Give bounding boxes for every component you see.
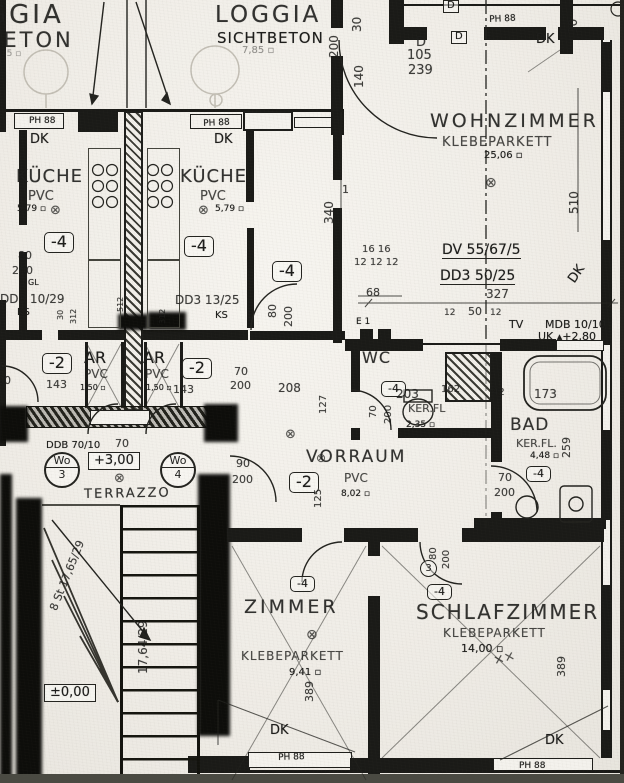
dim-259: 259 [561, 437, 572, 458]
door-dim-105: 105 [407, 49, 432, 62]
room-finish-vorraum: PVC [344, 472, 368, 484]
dim-312: 312 [159, 309, 167, 324]
dim-80: 80 [18, 250, 32, 261]
dim-208: 208 [278, 382, 301, 394]
window-label-dk: DK [545, 734, 564, 747]
room-label-wc: WC [362, 350, 391, 366]
dim-327: 327 [486, 288, 509, 300]
dim-12: 12 [490, 309, 501, 318]
room-finish-kueche-left: PVC [28, 190, 54, 203]
level-marker-zero: ±0,00 [44, 684, 96, 702]
dim-127: 127 [319, 395, 329, 414]
dim-140: 140 [353, 65, 365, 88]
dim-70: 70 [369, 405, 379, 418]
dim-200: 200 [494, 487, 515, 498]
dim-30: 30 [567, 19, 579, 34]
label-ks: KS [17, 308, 30, 318]
corner-mark [611, 2, 624, 16]
dim-200: 200 [230, 380, 251, 391]
room-area-wohnzimmer: 25,06 ▫ [484, 151, 523, 161]
door-mark-d2: D [451, 31, 467, 44]
room-area-vorraum: 8,02 ▫ [341, 490, 370, 499]
room-label-kueche-left: KÜCHE [16, 168, 83, 186]
room-label-terrazzo: TERRAZZO [84, 486, 171, 501]
dim-312: 312 [70, 309, 78, 324]
tree-symbols [24, 46, 239, 108]
dim-42: 42 [492, 388, 505, 398]
ceiling-outlet-icon: ⊗ [50, 204, 61, 217]
dim-200: 200 [384, 405, 394, 424]
room-finish-kueche-right: PVC [200, 190, 226, 203]
dim-173: 173 [534, 388, 557, 400]
room-label-zimmer: ZIMMER [244, 598, 339, 617]
beam-label-dv: DV 55/67/5 [442, 243, 521, 259]
dim-143: 143 [173, 384, 194, 395]
dim-1: 1 [342, 184, 349, 195]
bathtub [524, 356, 606, 410]
dim-200: 200 [232, 474, 253, 485]
room-area-bad: 4,48 ▫ [530, 452, 559, 461]
dim-389: 389 [556, 656, 567, 677]
dim-200: 200 [12, 265, 33, 276]
room-area-loggia-cut: 3,5 ▫ [0, 50, 21, 59]
level-marker-upper: +3,00 [88, 452, 140, 470]
dim-143: 143 [46, 379, 67, 390]
room-area-wc: 2,35 ▫ [406, 421, 435, 430]
door-dim-239: 239 [408, 64, 433, 77]
room-finish-ar-right: PVC [145, 368, 169, 380]
window-label-ph88: PH 88 [519, 762, 546, 771]
beam-label-dd3-50-25: DD3 50/25 [440, 269, 515, 285]
window-label-ph88: PH 88 [489, 15, 516, 25]
room-label-ar-right: AR [143, 350, 165, 366]
dim-200: 200 [442, 550, 452, 569]
room-label-schlafzimmer: SCHLAFZIMMER [416, 602, 599, 622]
room-finish-loggia-cut: BETON [0, 30, 74, 51]
dim-70: 70 [234, 366, 248, 377]
window-label-dk: DK [536, 33, 555, 46]
dim-70: 70 [115, 438, 129, 449]
window-label-dk: DK [270, 724, 289, 737]
dim-200: 200 [283, 306, 294, 327]
ceiling-outlet-icon: ⊗ [316, 452, 326, 464]
dim-12: 12 [444, 309, 455, 318]
dim-30: 30 [351, 17, 363, 32]
room-area-ar-right: 1,50 ▫ [146, 384, 172, 392]
room-finish-ar-left: PVC [84, 368, 108, 380]
door-tag-minus4: -4 [526, 466, 551, 482]
door-tag-minus2: -2 [182, 358, 212, 379]
floorplan-sheet: GGIA BETON 3,5 ▫ LOGGIA SICHTBETON 7,85 … [0, 0, 624, 783]
level-label-uk: UK ▴+2,80 [538, 331, 596, 342]
position-circle-3: 3 [420, 560, 437, 577]
window-label-dk: DK [214, 133, 233, 146]
room-label-wohnzimmer: WOHNZIMMER [430, 112, 599, 131]
door-mark-d1: D [443, 0, 459, 13]
label-ks: KS [215, 311, 228, 321]
dim-340: 340 [323, 201, 335, 224]
room-finish-zimmer: KLEBEPARKETT [241, 650, 344, 662]
label-gl: GL [28, 279, 39, 287]
room-finish-wc: KER.FL [408, 403, 445, 414]
dim-12-12-12: 12 12 12 [354, 258, 399, 268]
dim-389: 389 [304, 681, 315, 702]
ceiling-outlet-icon: ⊗ [198, 204, 209, 217]
door-tag-minus4: -4 [427, 584, 452, 600]
beam-label-ddb: DDB 70/10 [46, 441, 100, 451]
door-tag-minus4: -4 [184, 236, 214, 257]
window-label-ph88: PH 88 [203, 119, 230, 129]
dim-512: 512 [117, 297, 125, 312]
door-tag-minus4: -4 [44, 232, 74, 253]
apartment-circle-wo3: Wo 3 [44, 452, 80, 488]
dim-70: 70 [498, 472, 512, 483]
room-finish-schlafzimmer: KLEBEPARKETT [443, 627, 546, 639]
label-tv: TV [509, 319, 523, 330]
room-area-ar-left: 1,50 ▫ [80, 384, 106, 392]
room-finish-loggia: SICHTBETON [217, 31, 324, 46]
room-area-kueche-right: 5,79 ▫ [215, 205, 244, 214]
beam-label-dd3-13-25: DD3 13/25 [175, 294, 240, 306]
ceiling-outlet-icon: ⊗ [306, 628, 318, 642]
window-label-ph88: PH 88 [278, 753, 305, 763]
dim-68: 68 [366, 287, 380, 298]
room-area-loggia: 7,85 ▫ [242, 46, 274, 56]
beam-label-mdb: MDB 10/10 [545, 319, 606, 330]
beam-label-dd3-10-29: DD3 10/29 [0, 293, 65, 305]
door-arc-ar-right [146, 404, 176, 434]
boiler [560, 486, 592, 522]
room-label-kueche-right: KÜCHE [180, 168, 247, 186]
room-area-zimmer: 9,41 ▫ [289, 668, 321, 678]
washbasin [516, 496, 538, 518]
door-tag-minus2: -2 [42, 353, 72, 374]
room-area-kueche-left: 5,79 ▫ [17, 205, 46, 214]
door-tag-minus4: -4 [290, 576, 315, 592]
window-label-dk: DK [30, 133, 49, 146]
apartment-label: Wo [170, 454, 187, 467]
dim-510: 510 [568, 191, 580, 214]
dim-200: 200 [328, 35, 340, 58]
dim-70: 70 [0, 361, 6, 372]
apartment-label: Wo [54, 454, 71, 467]
room-label-loggia: LOGGIA [215, 4, 321, 27]
apartment-number: 4 [162, 467, 194, 481]
apartment-number: 3 [46, 467, 78, 481]
ceiling-outlet-icon: ⊗ [485, 176, 497, 190]
room-finish-wohnzimmer: KLEBEPARKETT [442, 136, 552, 149]
dim-80: 80 [429, 547, 439, 560]
dim-50: 50 [468, 306, 482, 317]
stair-label-straight: 17,64/29 [137, 620, 149, 674]
cooktop-circles [93, 165, 173, 208]
ceiling-outlet-icon: ⊗ [285, 428, 296, 441]
room-label-bad: BAD [510, 417, 549, 434]
dim-30: 30 [57, 310, 65, 320]
dim-200: 200 [0, 375, 11, 386]
ceiling-outlet-icon: ⊗ [114, 472, 125, 485]
window-label-ph88: PH 88 [29, 117, 56, 126]
dim-90: 90 [236, 458, 250, 469]
dim-203: 203 [396, 388, 419, 400]
apartment-circle-wo4: Wo 4 [160, 452, 196, 488]
room-label-loggia-cut: GGIA [0, 2, 64, 28]
leader-arrows [92, 0, 170, 108]
dim-16-16: 16 16 [362, 245, 391, 255]
dim-125: 125 [314, 489, 324, 508]
room-finish-bad: KER.FL. [516, 438, 557, 449]
dim-162: 162 [441, 385, 460, 395]
door-tag-minus4: -4 [272, 261, 302, 282]
label-e1: E 1 [356, 318, 370, 327]
dim-80: 80 [267, 304, 278, 318]
door-arc-ar-left [88, 404, 118, 434]
room-label-ar-left: AR [84, 350, 106, 366]
